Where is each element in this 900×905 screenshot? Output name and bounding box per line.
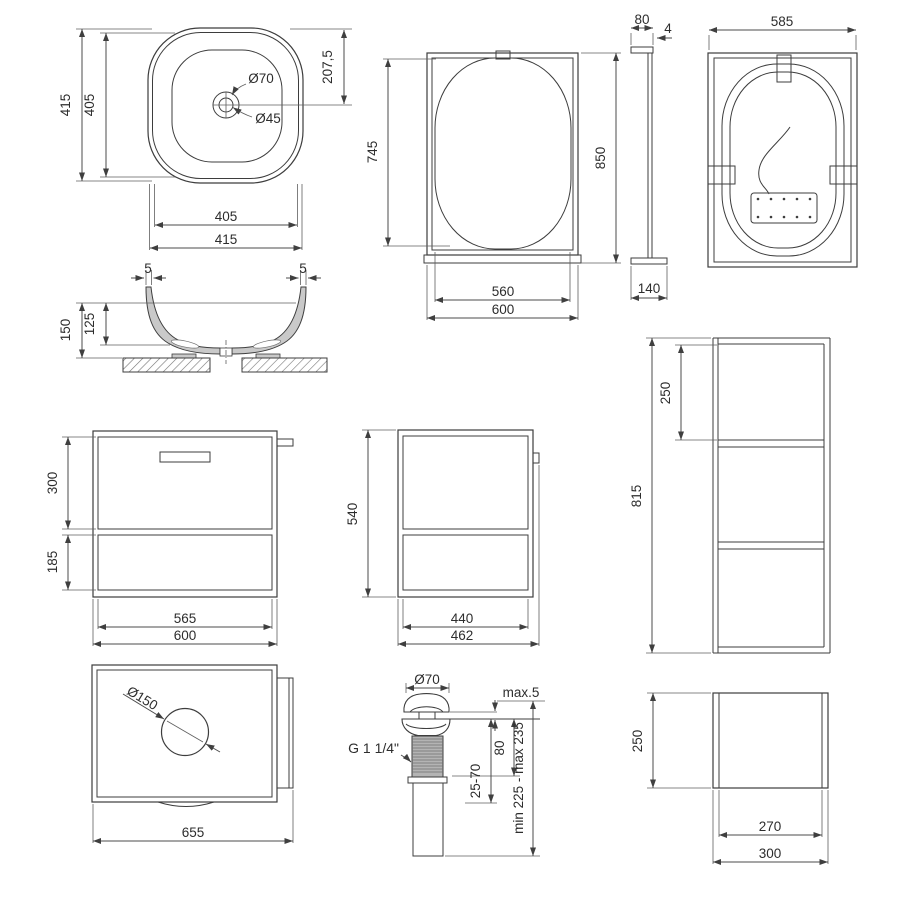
cabinet-drawer-front — [98, 437, 272, 529]
towel-rail-side — [533, 453, 539, 463]
side-panel-top-view — [277, 678, 293, 788]
mirror-frame-inner — [432, 58, 573, 250]
mirror-panel-edge — [648, 53, 652, 258]
dim-bracket-depth: 80 — [634, 12, 649, 27]
dim-mirror-back-width: 585 — [771, 14, 794, 29]
dim-shelf-module-height: 250 — [630, 730, 645, 753]
dim-drain-outer: Ø70 — [248, 71, 274, 86]
power-cord — [759, 127, 790, 194]
drain-cap-stem — [419, 712, 435, 719]
dim-sink-height-inner: 405 — [82, 94, 97, 117]
basin-wall-left — [146, 287, 220, 358]
dim-shelf-width: 300 — [759, 846, 782, 861]
dim-thread-type: G 1 1/4" — [348, 740, 399, 756]
dim-wall-left: 5 — [144, 261, 152, 276]
dim-drain-cap: Ø70 — [414, 672, 440, 687]
mirror-bottom-lip — [424, 255, 581, 263]
view-cabinet-side: 540 440 462 — [345, 430, 539, 646]
technical-drawing-canvas: 415 405 405 415 207,5 Ø70 Ø45 — [0, 0, 900, 900]
cabinet-side-upper-panel — [403, 436, 528, 529]
hanger-bracket-top — [777, 55, 791, 82]
dim-cabinet-width: 600 — [174, 628, 197, 643]
dim-cabinet-depth: 462 — [451, 628, 474, 643]
dim-sink-width-outer: 415 — [215, 232, 238, 247]
dim-clamp-range: 25-70 — [468, 764, 483, 799]
dim-drain-inner: Ø45 — [255, 111, 281, 126]
view-sink-section: 5 5 150 125 — [58, 261, 327, 372]
dim-sink-section-height: 150 — [58, 319, 73, 342]
dim-mirror-width: 600 — [492, 302, 515, 317]
dim-shelf-inner-width: 270 — [759, 819, 782, 834]
mirror-back-frame-inner — [714, 58, 851, 262]
drain-locknut — [408, 777, 447, 783]
view-cabinet-top: Ø150 655 — [92, 665, 293, 843]
cabinet-top-inner — [97, 670, 272, 797]
cabinet-side-lower-panel — [403, 535, 528, 590]
countertop-hatch-right — [242, 358, 327, 372]
dim-cabinet-top-width: 655 — [182, 825, 205, 840]
cabinet-top-outline — [92, 665, 277, 802]
sink-hole-cutout — [162, 709, 209, 756]
dim-mirror-height: 850 — [593, 147, 608, 170]
basin-rim-inner-edge — [153, 33, 299, 179]
dim-tall-height: 815 — [629, 485, 644, 508]
basin-wall-right — [232, 287, 306, 358]
dim-glass-width: 560 — [492, 284, 515, 299]
view-sink-top: 415 405 405 415 207,5 Ø70 Ø45 — [58, 28, 352, 250]
view-mirror-side: 80 4 140 — [631, 12, 672, 300]
drain-thread-body — [412, 736, 443, 777]
mirror-bottom-bracket — [631, 258, 667, 264]
dim-deck-gap: max.5 — [503, 685, 540, 700]
view-drain-valve: Ø70 max.5 80 25-70 min 225 - max 235 G 1… — [348, 672, 545, 856]
view-mirror-back: 585 — [708, 14, 857, 267]
basin-bowl-edge — [172, 50, 282, 162]
dim-wall-right: 5 — [299, 261, 307, 276]
dim-tall-section: 250 — [658, 382, 673, 405]
towel-rail-end — [277, 439, 293, 446]
dim-panel-thickness: 4 — [664, 21, 672, 36]
dim-hole-diameter: Ø150 — [124, 683, 160, 713]
dim-bottom-depth: 140 — [638, 281, 661, 296]
cabinet-open-shelf — [98, 535, 272, 590]
countertop-hatch-left — [123, 358, 210, 372]
dim-cabinet-inner-width: 565 — [174, 611, 197, 626]
dim-cabinet-inner-depth: 440 — [451, 611, 474, 626]
view-cabinet-front: 300 185 565 600 — [45, 431, 293, 646]
view-mirror-front: 745 850 560 600 — [365, 51, 621, 320]
drain-tailpipe — [413, 783, 443, 856]
dim-drain-offset: 207,5 — [320, 50, 335, 84]
dim-sink-section-depth: 125 — [82, 313, 97, 336]
drain-cap — [404, 694, 449, 712]
dim-drain-body-height: 80 — [492, 740, 507, 755]
dim-drawer-height: 300 — [45, 472, 60, 495]
dim-total-height: min 225 - max 235 — [511, 722, 526, 834]
tall-cabinet-frame — [713, 338, 830, 653]
dim-cabinet-height: 540 — [345, 503, 360, 526]
drawer-handle-slot — [160, 452, 210, 462]
dim-sink-height-outer: 415 — [58, 94, 73, 117]
dim-sink-width-inner: 405 — [215, 209, 238, 224]
drain-flange — [402, 719, 450, 736]
shelf-module-outline — [713, 693, 828, 788]
basin-silhouette-arc — [158, 802, 214, 807]
view-tall-cabinet: 815 250 — [629, 338, 830, 653]
dim-shelf-height: 185 — [45, 551, 60, 574]
junction-box — [751, 193, 817, 223]
cabinet-side-body — [398, 430, 533, 597]
mirror-glass-oval — [435, 58, 571, 249]
mirror-top-bracket — [631, 47, 653, 53]
cabinet-body — [93, 431, 277, 597]
drawing-stage: 415 405 405 415 207,5 Ø70 Ø45 — [0, 0, 900, 900]
view-side-shelf: 250 270 300 — [630, 693, 828, 864]
basin-outer-rim — [148, 28, 303, 183]
dim-glass-height: 745 — [365, 141, 380, 164]
led-track-inner — [730, 72, 836, 248]
